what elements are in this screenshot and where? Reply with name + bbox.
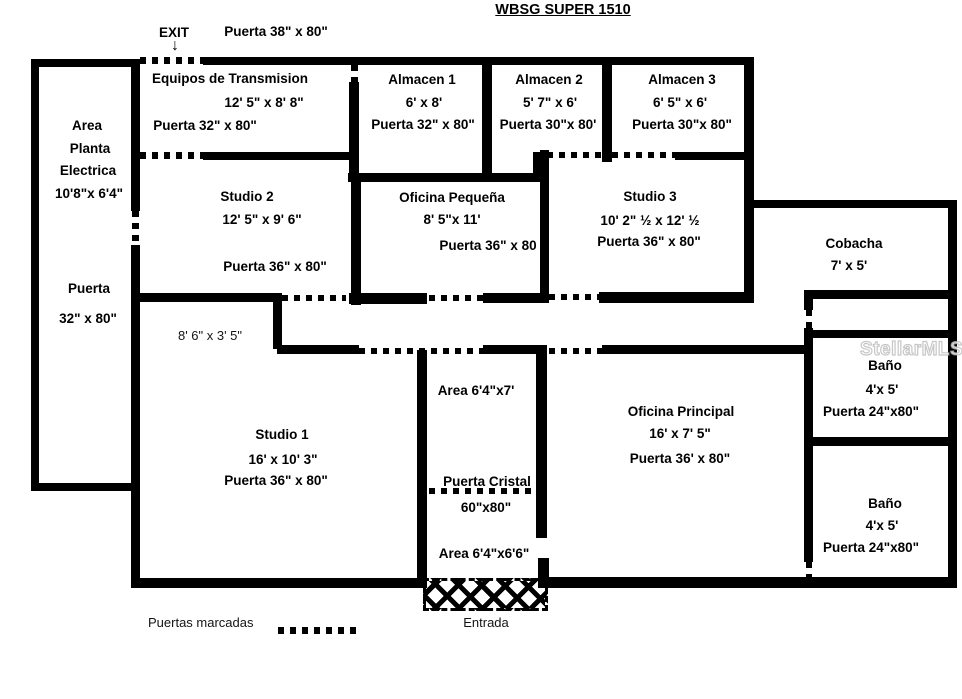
wall [349,82,359,182]
door-bano1-dotted [806,310,812,328]
room-almacen1-size: 6' x 8' [406,95,442,110]
door-almacen2-dotted [547,152,602,158]
door-exit-dotted [140,57,203,64]
wall [602,345,810,354]
room-oficina-pequena-name: Oficina Pequeña [399,190,505,205]
door-bano2-dotted [806,562,812,578]
wall [804,290,813,310]
floor-plan: WBSG SUPER 1510 EXIT ↓ Puerta 38" x 80" [0,0,962,699]
room-planta-line3: Electrica [60,163,116,178]
room-planta-line2: Planta [70,141,111,156]
wall [599,292,754,303]
wall [31,483,140,491]
room-bano2-door: Puerta 24"x80" [823,540,919,555]
legend-dotted-sample [278,627,356,634]
exit-arrow-icon: ↓ [171,37,179,55]
wall [131,59,140,211]
room-studio2-size: 12' 5" x 9' 6" [222,212,301,227]
wall [203,57,753,65]
vestibule-area-top: Area 6'4"x7' [438,383,515,398]
exit-door-size: Puerta 38" x 80" [224,24,328,39]
wall [482,57,492,178]
room-planta-size: 10'8"x 6'4" [55,186,123,201]
wall [540,150,549,303]
wall [31,59,39,491]
wall [277,345,359,354]
wall [417,350,427,588]
room-equipos-door: Puerta 32" x 80" [153,118,257,133]
room-oficina-principal-door: Puerta 36' x 80" [630,451,730,466]
door-planta-studio2-dotted [132,211,139,245]
door-studio1-dotted [359,348,483,354]
room-studio1-door: Puerta 36" x 80" [224,473,328,488]
door-equipos-dotted [140,152,203,159]
room-almacen3-size: 6' 5" x 6' [653,95,707,110]
wall [131,578,418,588]
door-almacen3-dotted [612,152,675,158]
room-studio2-name: Studio 2 [220,189,273,204]
room-almacen3-door: Puerta 30"x 80" [632,117,732,132]
wall [810,330,950,338]
door-oficina-pequena-dotted [429,295,484,301]
room-almacen2-door: Puerta 30"x 80' [500,117,597,132]
wall [948,200,957,588]
watermark: StellarMLS [860,339,962,361]
wall [349,293,427,304]
room-oficina-pequena-door: Puerta 36" x 80 [439,238,536,253]
room-bano1-size: 4'x 5' [866,382,899,397]
wall [131,293,282,302]
door-studio2-dotted [282,295,346,301]
room-cobacha-name: Cobacha [825,236,882,251]
room-bano1-door: Puerta 24"x80" [823,404,919,419]
room-bano2-name: Baño [868,496,902,511]
door-almacen1-dotted [351,65,358,82]
wall [348,173,547,182]
door-studio3-dotted [549,294,599,300]
room-cobacha-size: 7' x 5' [831,258,867,273]
room-oficina-pequena-size: 8' 5"x 11' [423,212,480,227]
room-studio3-size: 10' 2" ½ x 12' ½ [600,213,699,228]
room-studio1-name: Studio 1 [255,427,308,442]
room-studio3-name: Studio 3 [623,189,676,204]
door-oficina-principal-dotted [549,348,602,354]
room-studio1-size: 16' x 10' 3" [248,452,317,467]
entrance-hatch [423,578,548,611]
vestibule-area-bottom: Area 6'4"x6'6" [439,546,530,561]
wall [602,57,612,162]
room-studio2-door: Puerta 36" x 80" [223,259,327,274]
legend-doors-label: Puertas marcadas [148,615,254,630]
room-almacen3-name: Almacen 3 [648,72,716,87]
wall [483,293,543,303]
room-equipos-size: 12' 5" x 8' 8" [224,95,303,110]
vestibule-glass-door: Puerta Cristal [443,474,531,489]
alcove-size: 8' 6" x 3' 5" [178,328,242,343]
room-almacen2-name: Almacen 2 [515,72,583,87]
room-oficina-principal-name: Oficina Principal [628,404,735,419]
wall [273,301,282,349]
room-equipos-name: Equipos de Transmision [152,71,308,86]
room-planta-door2: 32" x 80" [59,311,117,326]
wall [547,577,957,588]
wall [31,59,140,67]
wall [203,152,352,160]
room-almacen1-door: Puerta 32" x 80" [371,117,475,132]
room-studio3-door: Puerta 36" x 80" [597,234,701,249]
wall [536,350,547,538]
vestibule-glass-size: 60"x80" [461,500,511,515]
wall [675,152,744,160]
wall [748,200,957,208]
wall [810,437,950,446]
room-planta-line1: Area [72,118,102,133]
room-planta-door1: Puerta [68,281,110,296]
room-bano2-size: 4'x 5' [866,518,899,533]
entrance-label: Entrada [463,615,509,630]
wall [804,290,949,299]
room-almacen1-name: Almacen 1 [388,72,456,87]
wall [351,182,361,305]
wall [744,57,754,303]
room-almacen2-size: 5' 7" x 6' [523,95,577,110]
room-oficina-principal-size: 16' x 7' 5" [649,426,711,441]
plan-title: WBSG SUPER 1510 [495,2,630,18]
